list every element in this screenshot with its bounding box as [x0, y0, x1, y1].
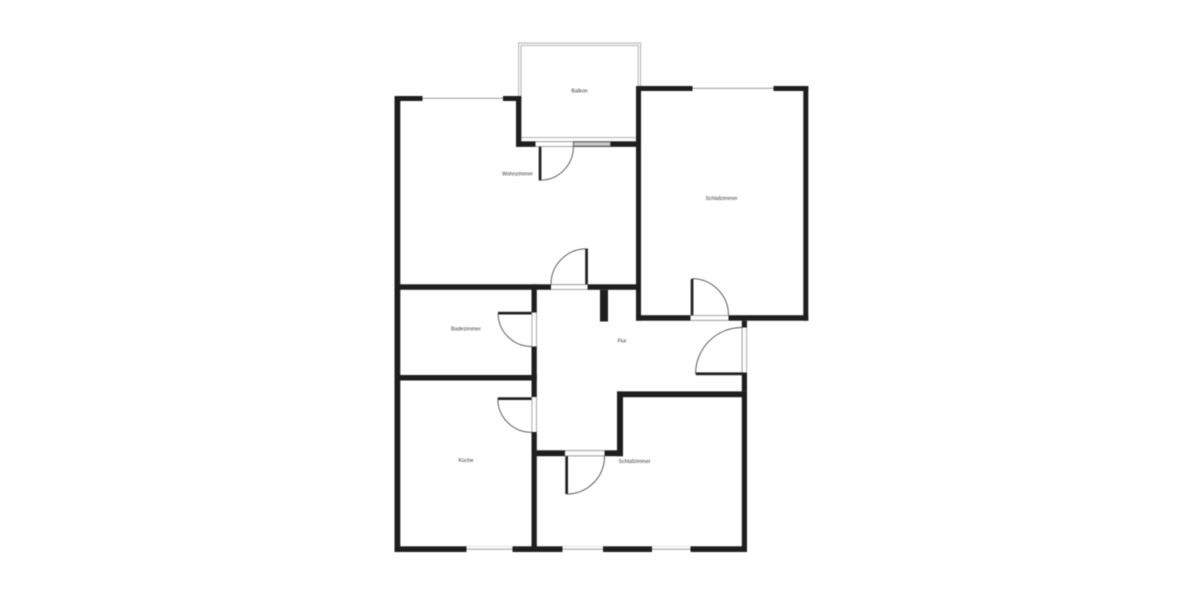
svg-text:Balkon: Balkon	[571, 88, 587, 94]
svg-text:Küche: Küche	[458, 458, 473, 464]
svg-text:Wohnzimmer: Wohnzimmer	[502, 172, 533, 178]
svg-text:Badezimmer: Badezimmer	[451, 327, 481, 333]
svg-text:Flur: Flur	[617, 339, 626, 345]
svg-text:Schlafzimmer: Schlafzimmer	[618, 459, 650, 465]
svg-text:Schlafzimmer: Schlafzimmer	[705, 196, 737, 202]
